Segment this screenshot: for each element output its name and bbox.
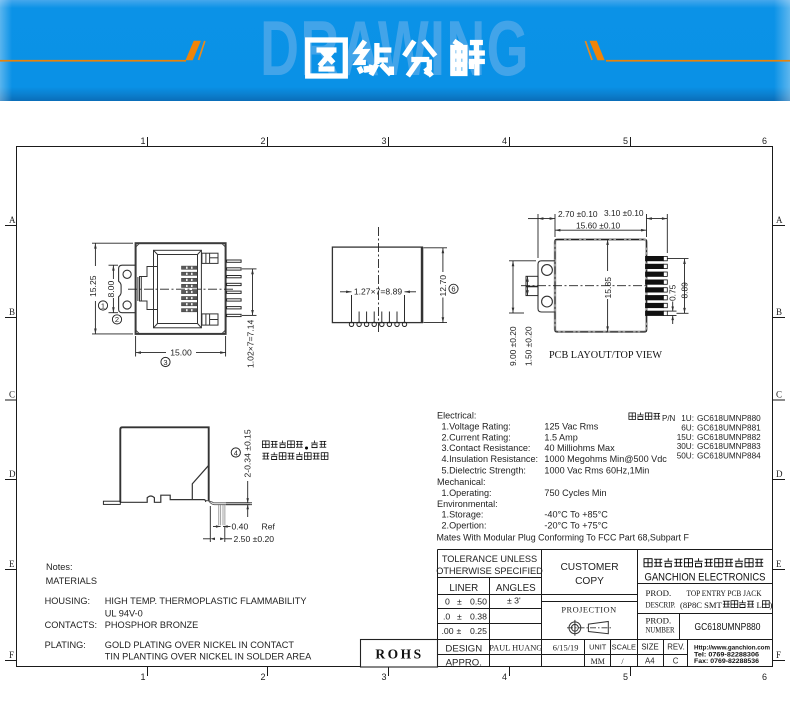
svg-text:6/15/19: 6/15/19 [553,644,579,653]
svg-text:2: 2 [261,672,266,682]
svg-text:PCB LAYOUT/TOP VIEW: PCB LAYOUT/TOP VIEW [549,350,662,361]
svg-text:2: 2 [261,136,266,146]
svg-text:GC618UMNP880: GC618UMNP880 [697,414,761,423]
svg-text:HOUSING:: HOUSING: [45,596,90,606]
svg-text:6: 6 [762,672,767,682]
svg-text:ANGLES: ANGLES [496,583,536,594]
svg-text:Mates With Modular Plug Confor: Mates With Modular Plug Conforming To FC… [437,533,690,543]
svg-text:Environmental:: Environmental: [437,499,498,509]
svg-text:GC618UMNP880: GC618UMNP880 [695,622,761,633]
svg-text:2: 2 [115,315,119,324]
svg-text:1.5 Amp: 1.5 Amp [544,433,577,443]
svg-text:1.27×7=8.89: 1.27×7=8.89 [354,287,402,297]
svg-text:Fax: 0769-82288536: Fax: 0769-82288536 [694,658,759,665]
svg-text:UNIT: UNIT [589,643,607,652]
svg-text:1000 Vac Rms 60Hz,1Min: 1000 Vac Rms 60Hz,1Min [544,465,649,475]
svg-text:D: D [776,469,783,479]
svg-text:3.Contact Resistance:: 3.Contact Resistance: [442,443,531,453]
svg-text:P/N: P/N [662,414,676,423]
svg-text:15.00: 15.00 [170,348,192,358]
svg-text:HIGH TEMP. THERMOPLASTIC FLAMM: HIGH TEMP. THERMOPLASTIC FLAMMABILITY [105,596,307,606]
svg-text:D: D [9,469,16,479]
svg-text:1000 Megohms Min@500 Vdc: 1000 Megohms Min@500 Vdc [544,454,667,464]
svg-text:1.50 ±0.20: 1.50 ±0.20 [524,326,534,366]
svg-text:-40°C To +85°C: -40°C To +85°C [544,510,608,520]
svg-text:3: 3 [382,136,387,146]
svg-text:NUMBER: NUMBER [646,625,675,635]
svg-text:DESCRIP.: DESCRIP. [646,600,676,610]
svg-text:COPY: COPY [575,576,604,587]
svg-text:6U:: 6U: [681,423,694,432]
svg-text:F: F [776,650,781,660]
svg-text:750 Cycles Min: 750 Cycles Min [544,488,606,498]
svg-text:4: 4 [502,136,507,146]
svg-text:0.38: 0.38 [470,612,487,622]
svg-text:2-0.34 ±0.15: 2-0.34 ±0.15 [243,429,253,477]
svg-text:GC618UMNP884: GC618UMNP884 [697,452,761,461]
svg-text:B: B [776,307,782,317]
svg-text:A: A [776,215,783,225]
svg-text:5: 5 [623,672,628,682]
svg-text:CONTACTS:: CONTACTS: [45,620,97,630]
svg-text:A4: A4 [645,656,655,665]
svg-text:PAUL HUANG: PAUL HUANG [489,644,542,653]
svg-text:.00: .00 [442,626,454,636]
svg-text:): ) [770,600,773,610]
svg-text:OTHERWISE SPECIFIED: OTHERWISE SPECIFIED [436,566,543,576]
svg-text:GOLD PLATING OVER NICKEL IN CO: GOLD PLATING OVER NICKEL IN CONTACT [105,640,295,650]
svg-text:PROJECTION: PROJECTION [561,605,616,614]
svg-text:MM: MM [591,657,605,666]
svg-text:-20°C To +75°C: -20°C To +75°C [544,520,608,530]
svg-text:TIN PLANTING OVER NICKEL IN SO: TIN PLANTING OVER NICKEL IN SOLDER AREA [105,652,312,662]
svg-text:2.Opertion:: 2.Opertion: [442,520,487,530]
svg-text:12.70: 12.70 [438,275,448,297]
svg-text:DESIGN: DESIGN [445,643,482,654]
svg-text:MATERIALS: MATERIALS [46,576,97,586]
svg-text:15U:: 15U: [677,433,694,442]
svg-text:0.40: 0.40 [232,522,249,532]
svg-text:1.Operating:: 1.Operating: [442,488,492,498]
svg-text:0.25: 0.25 [470,626,487,636]
svg-text:PROD.: PROD. [646,588,672,598]
svg-text:TOP ENTRY PCB JACK: TOP ENTRY PCB JACK [687,588,763,598]
svg-text:.0: .0 [443,612,450,622]
svg-text:2.70 ±0.10: 2.70 ±0.10 [558,209,598,219]
svg-text:B: B [9,307,15,317]
svg-text:A: A [9,215,16,225]
svg-text:1: 1 [141,136,146,146]
svg-text:GC618UMNP882: GC618UMNP882 [697,433,761,442]
svg-text:1.02×7=7.14: 1.02×7=7.14 [245,320,255,368]
svg-text:PLATING:: PLATING: [45,640,86,650]
svg-text:±: ± [457,626,462,636]
svg-text:E: E [9,559,15,569]
svg-text:50U:: 50U: [677,452,694,461]
svg-text:SIZE: SIZE [641,643,658,652]
svg-text:GC618UMNP881: GC618UMNP881 [697,423,761,432]
svg-text:1.Voltage Rating:: 1.Voltage Rating: [442,422,511,432]
svg-text:0: 0 [445,597,450,607]
svg-text:F: F [9,650,14,660]
svg-text:C: C [776,390,782,400]
svg-text:4: 4 [502,672,507,682]
svg-text:9.00 ±0.20: 9.00 ±0.20 [508,326,518,366]
svg-text:C: C [9,390,15,400]
svg-text:CUSTOMER: CUSTOMER [560,562,618,573]
svg-text:(8P8C SMT: (8P8C SMT [680,600,723,610]
svg-text:15.60 ±0.10: 15.60 ±0.10 [576,220,621,230]
svg-text:30U:: 30U: [677,442,694,451]
svg-text:TOLERANCE UNLESS: TOLERANCE UNLESS [442,554,537,564]
svg-text:± 3': ± 3' [507,596,521,606]
svg-text:1: 1 [141,672,146,682]
svg-text:0.50: 0.50 [470,597,487,607]
svg-text:L: L [757,600,762,610]
svg-text:PHOSPHOR BRONZE: PHOSPHOR BRONZE [105,620,198,630]
svg-text:40 Milliohms Max: 40 Milliohms Max [544,443,615,453]
svg-text:2.Current Rating:: 2.Current Rating: [442,433,511,443]
svg-text:3.10 ±0.10: 3.10 ±0.10 [604,208,644,218]
svg-text:8.89: 8.89 [679,282,689,299]
svg-text:SCALE: SCALE [612,643,636,652]
svg-text:1.Storage:: 1.Storage: [442,510,484,520]
svg-text:1: 1 [101,301,105,310]
svg-text:Notes:: Notes: [46,562,73,572]
svg-text:GC618UMNP883: GC618UMNP883 [697,442,761,451]
svg-text:6: 6 [451,285,455,294]
svg-text:5: 5 [623,136,628,146]
svg-text:15.85: 15.85 [603,277,613,299]
svg-text:Ref: Ref [262,522,276,532]
svg-text:Http://www.ganchion.com: Http://www.ganchion.com [694,645,770,652]
svg-text:APPRO.: APPRO. [446,658,482,669]
svg-text:±: ± [457,597,462,607]
svg-text:1U:: 1U: [681,414,694,423]
svg-text:REV.: REV. [667,643,684,652]
svg-text:LINER: LINER [449,583,478,594]
svg-text:C: C [673,656,679,665]
svg-text:0.75: 0.75 [668,284,678,301]
svg-text:GANCHION ELECTRONICS: GANCHION ELECTRONICS [645,572,766,584]
svg-text:2.50 ±0.20: 2.50 ±0.20 [234,534,275,544]
svg-text:±: ± [457,612,462,622]
svg-text:6: 6 [762,136,767,146]
svg-text:Electrical:: Electrical: [437,411,476,421]
svg-text:3: 3 [163,358,167,367]
svg-text:Mechanical:: Mechanical: [437,477,486,487]
svg-text:ROHS: ROHS [375,647,423,662]
svg-text:3: 3 [382,672,387,682]
svg-text:5.Dielectric Strength:: 5.Dielectric Strength: [442,465,526,475]
svg-text:/: / [621,657,624,666]
svg-text:4.Insulation Resistance:: 4.Insulation Resistance: [442,454,539,464]
svg-text:4: 4 [234,448,238,457]
svg-text:8.00: 8.00 [106,281,116,298]
svg-text:UL 94V-0: UL 94V-0 [105,608,143,618]
svg-text:E: E [776,559,782,569]
svg-text:15.25: 15.25 [88,275,98,297]
svg-text:125 Vac Rms: 125 Vac Rms [544,422,598,432]
